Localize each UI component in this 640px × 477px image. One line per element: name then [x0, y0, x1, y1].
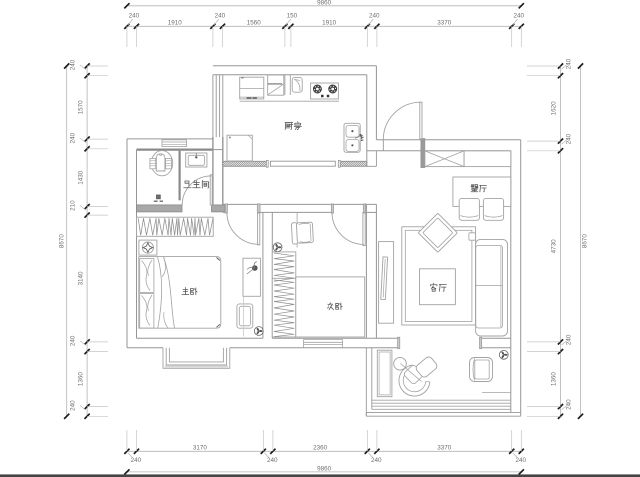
svg-text:240: 240 [70, 132, 77, 143]
svg-text:2360: 2360 [313, 445, 328, 452]
svg-text:240: 240 [129, 12, 140, 19]
svg-text:1360: 1360 [551, 372, 558, 387]
svg-text:1910: 1910 [322, 20, 337, 27]
svg-text:240: 240 [215, 12, 226, 19]
svg-text:240: 240 [70, 335, 77, 346]
svg-text:150: 150 [287, 12, 298, 19]
svg-text:1560: 1560 [247, 20, 262, 27]
svg-text:210: 210 [70, 200, 77, 211]
svg-text:240: 240 [70, 59, 77, 70]
svg-text:240: 240 [513, 12, 524, 19]
svg-text:1910: 1910 [168, 20, 183, 27]
svg-text:4730: 4730 [551, 239, 558, 254]
svg-text:8670: 8670 [59, 234, 66, 249]
svg-text:1360: 1360 [78, 372, 85, 387]
svg-text:240: 240 [565, 399, 572, 410]
svg-text:240: 240 [565, 334, 572, 345]
svg-text:3170: 3170 [193, 445, 208, 452]
svg-text:9860: 9860 [317, 0, 332, 7]
svg-text:3140: 3140 [78, 271, 85, 286]
svg-text:9860: 9860 [317, 465, 332, 472]
svg-text:8670: 8670 [582, 234, 589, 249]
svg-text:1620: 1620 [551, 101, 558, 116]
svg-text:1570: 1570 [78, 100, 85, 115]
svg-text:240: 240 [70, 400, 77, 411]
svg-text:240: 240 [369, 12, 380, 19]
svg-text:3370: 3370 [437, 445, 452, 452]
svg-text:240: 240 [565, 133, 572, 144]
svg-text:240: 240 [565, 58, 572, 69]
svg-text:3370: 3370 [437, 20, 452, 27]
svg-text:1430: 1430 [78, 170, 85, 185]
